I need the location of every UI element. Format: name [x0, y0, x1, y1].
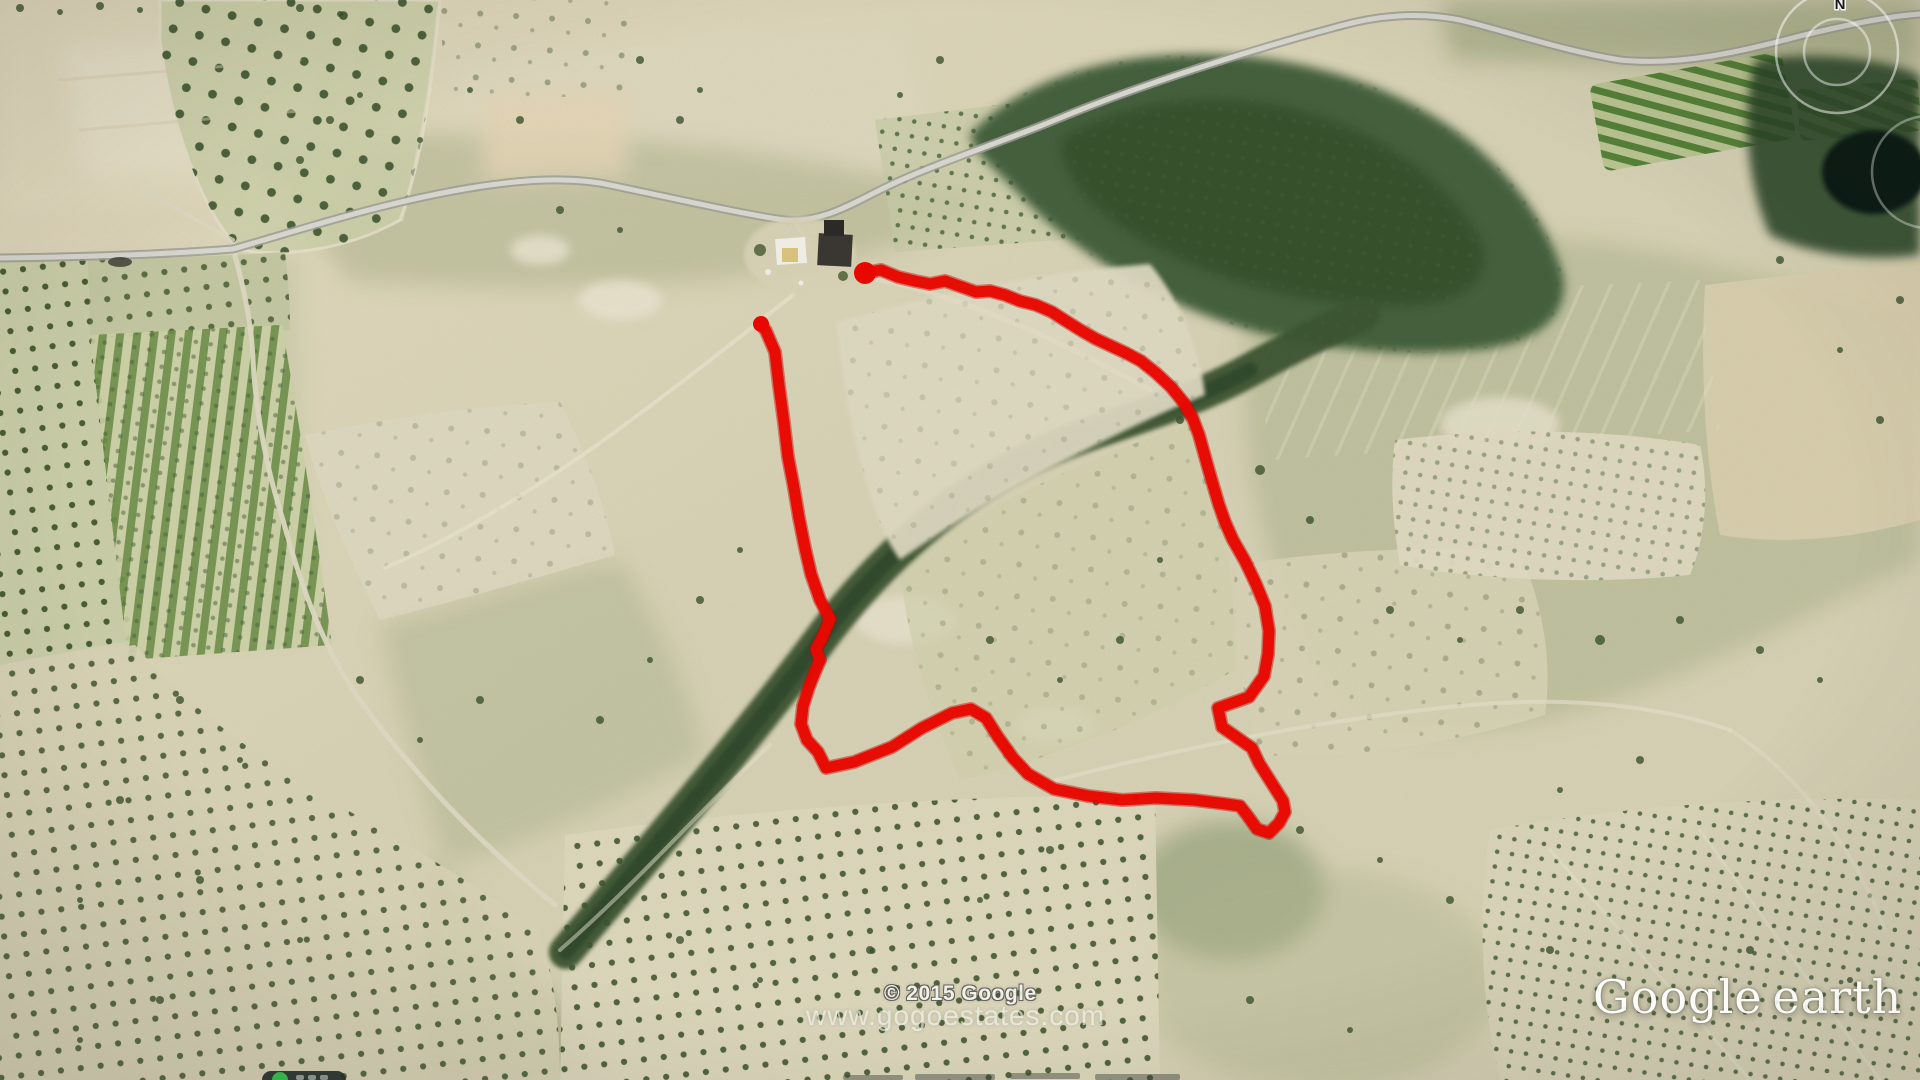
satellite-imagery-canvas[interactable]: N	[0, 0, 1920, 1080]
pill-glyph	[308, 1075, 316, 1080]
pill-glyph	[296, 1075, 304, 1080]
pill-glyph	[320, 1075, 328, 1080]
boundary-endpoint-end	[753, 316, 769, 332]
google-earth-viewport[interactable]: N © 2015 Google www.gogoestates.com Goog…	[0, 0, 1920, 1080]
vignette	[0, 0, 1920, 1080]
boundary-endpoint-start	[854, 262, 876, 284]
compass-north-indicator[interactable]: N	[1835, 0, 1846, 13]
